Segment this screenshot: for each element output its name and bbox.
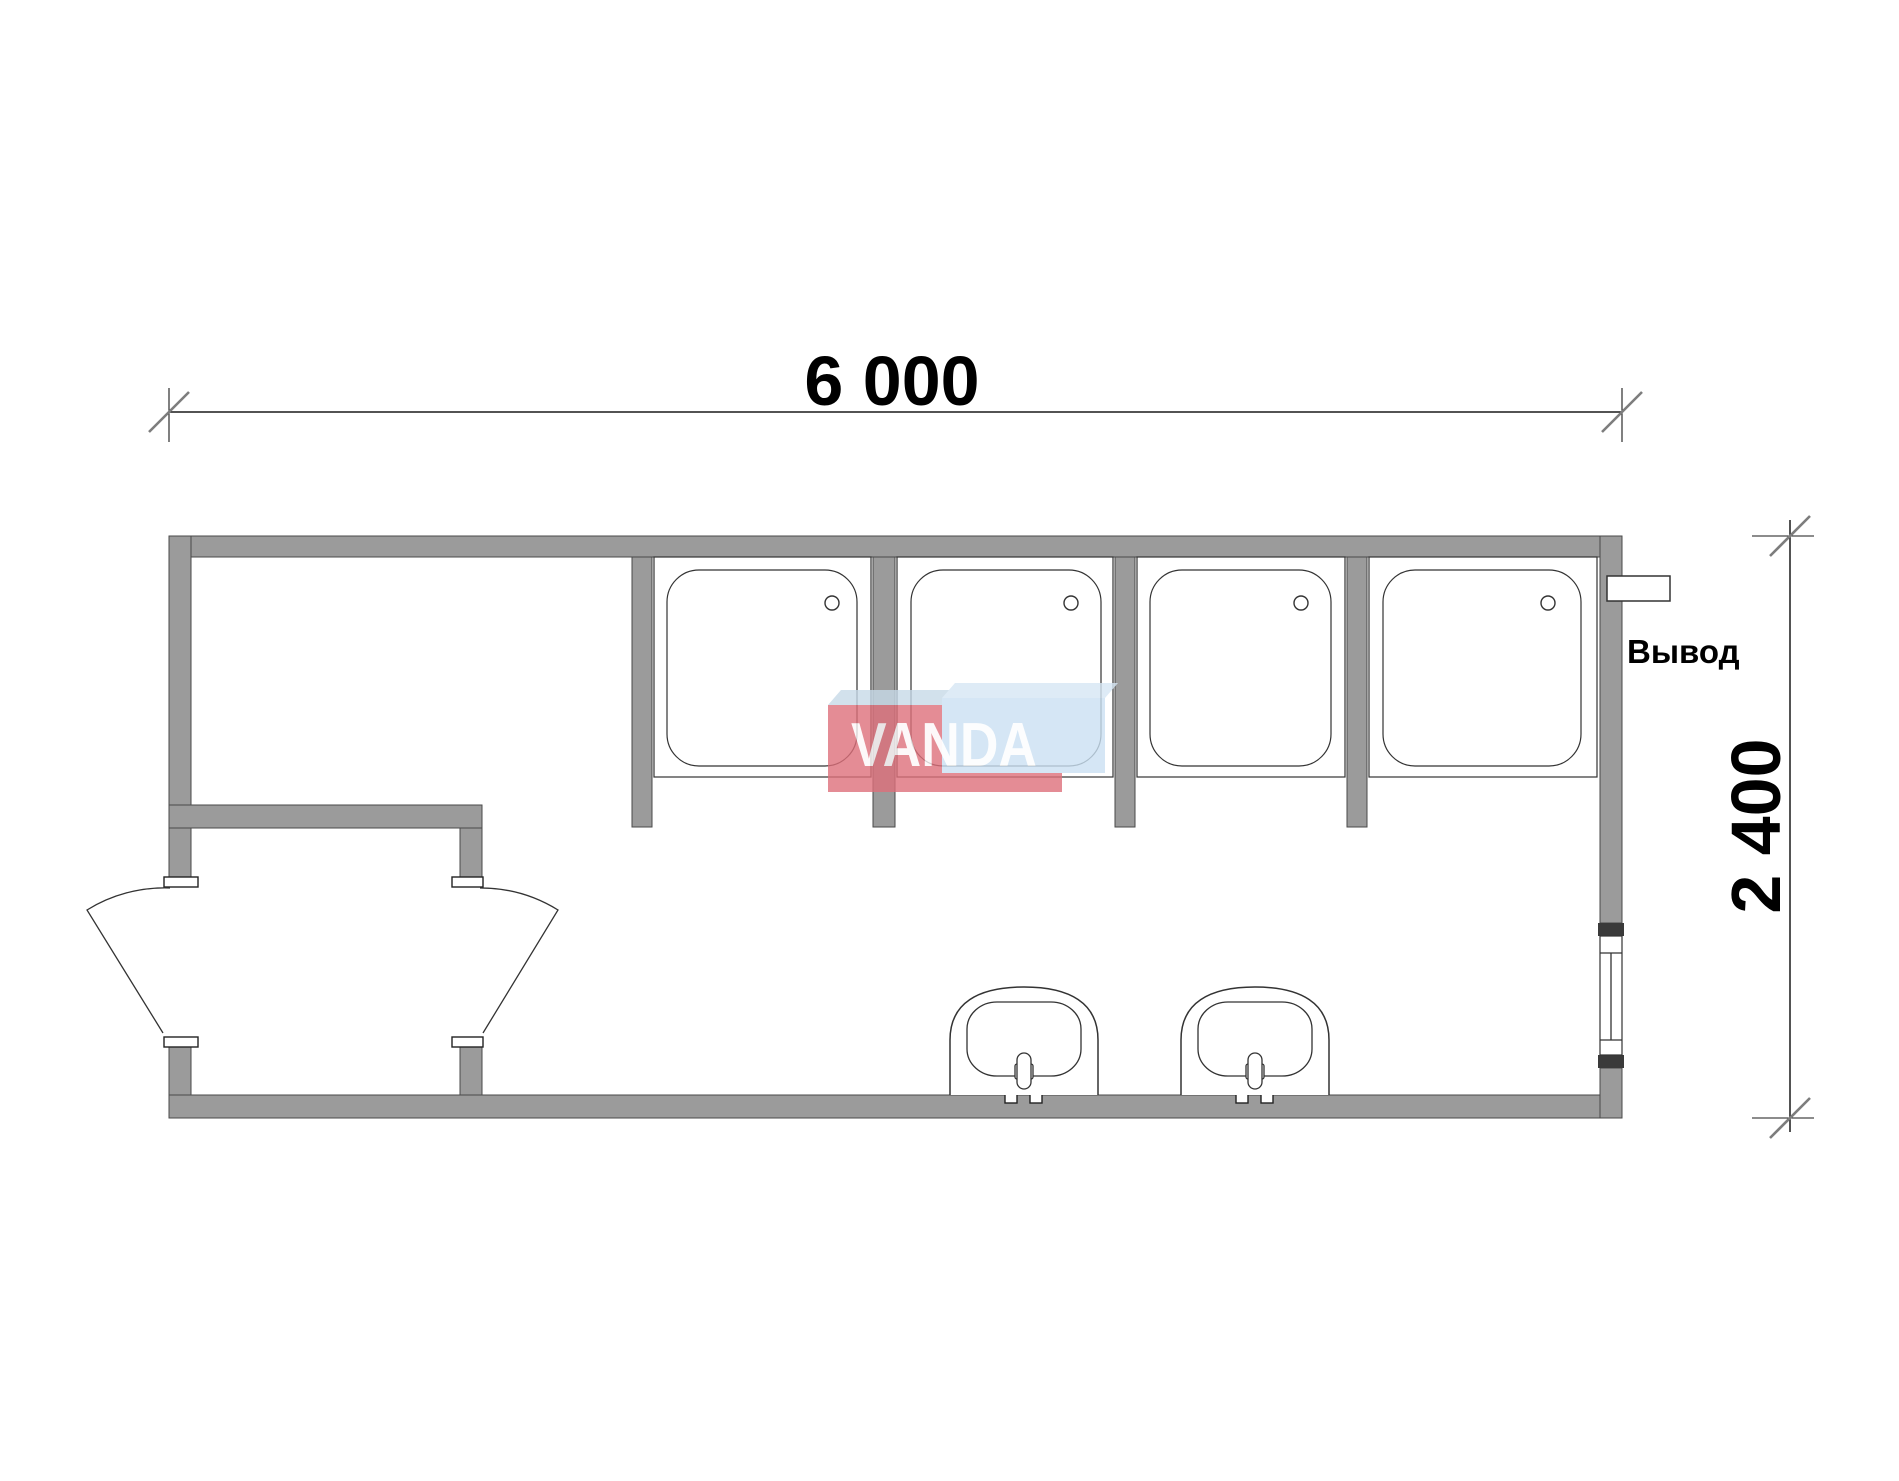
outlet-box-icon — [1607, 576, 1670, 601]
dimension-width: 6 000 — [149, 342, 1642, 442]
door-leaf-right-icon — [480, 888, 558, 1033]
dimension-height: 2 400 — [1717, 516, 1814, 1138]
floor-plan-canvas: Вывод VANDA 6 000 — [0, 0, 1899, 1481]
partition-1 — [632, 557, 652, 827]
partition-4 — [1347, 557, 1367, 827]
entrance-door — [87, 877, 558, 1047]
sink-drain-notch — [1261, 1094, 1273, 1103]
drain-icon — [825, 596, 839, 610]
logo-blue-top-face — [942, 683, 1118, 698]
drain-icon — [1294, 596, 1308, 610]
width-dimension-text: 6 000 — [804, 342, 979, 420]
partition-3 — [1115, 557, 1135, 827]
outlet-label: Вывод — [1627, 633, 1740, 670]
washbasin-icon — [950, 987, 1098, 1103]
wall-vestibule-top — [169, 805, 482, 828]
drain-icon — [1541, 596, 1555, 610]
wall-top — [169, 536, 1622, 557]
sink-drain-notch — [1030, 1094, 1042, 1103]
sink-faucet — [1248, 1053, 1262, 1089]
logo-pink-top-face — [828, 690, 955, 705]
door-jamb — [164, 1037, 198, 1047]
window-cap — [1598, 1055, 1624, 1068]
door-jamb — [164, 877, 198, 887]
wall-vestibule-right-upper — [460, 828, 482, 877]
watermark-text: VANDA — [851, 711, 1037, 780]
sink-drain-notch — [1005, 1094, 1017, 1103]
sink-drain-notch — [1236, 1094, 1248, 1103]
height-dimension-text: 2 400 — [1717, 738, 1795, 913]
utility-outlet: Вывод — [1607, 576, 1740, 670]
wall-vestibule-right-lower — [460, 1047, 482, 1095]
door-jamb — [452, 1037, 483, 1047]
wall-bottom — [169, 1095, 1622, 1118]
window — [1598, 923, 1624, 1068]
door-jamb — [452, 877, 483, 887]
door-leaf-left-icon — [87, 888, 170, 1033]
window-cap — [1598, 923, 1624, 936]
wall-right-lower — [1600, 1068, 1622, 1118]
washbasin-icon — [1181, 987, 1329, 1103]
sink-faucet — [1017, 1053, 1031, 1089]
drain-icon — [1064, 596, 1078, 610]
